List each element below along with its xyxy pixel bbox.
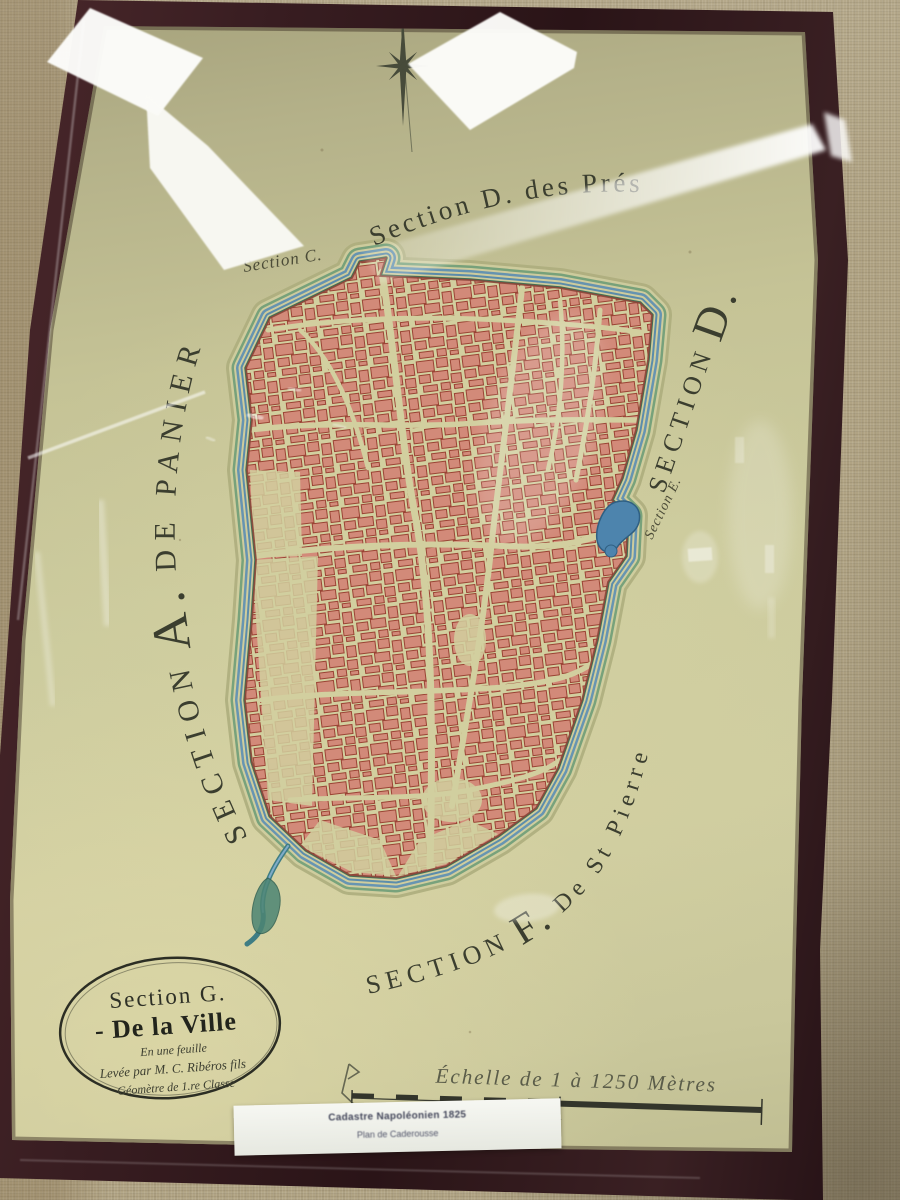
exhibit-label-card: Cadastre Napoléonien 1825 Plan de Cadero… xyxy=(233,1098,561,1155)
photo-framed-cadastral-map: Section D. des Prés Section C. SECTIONA.… xyxy=(0,0,900,1200)
moat-pond-small xyxy=(605,545,617,557)
scale-text: Échelle de 1 à 1250 Mètres xyxy=(434,1064,717,1097)
label-section-d-des-pres: Section D. des Prés xyxy=(365,168,644,252)
card-title: Cadastre Napoléonien 1825 xyxy=(234,1107,561,1125)
stream xyxy=(247,846,288,944)
cartouche-section-g: Section G. - De la Ville En une feuille … xyxy=(55,950,284,1105)
town-interior xyxy=(245,258,652,878)
label-section-c: Section C. xyxy=(242,245,324,276)
card-subtitle: Plan de Caderousse xyxy=(234,1125,561,1142)
cadastral-map-drawing: Section D. des Prés Section C. SECTIONA.… xyxy=(0,0,900,1200)
cartouche-line3: En une feuille xyxy=(139,1040,208,1059)
